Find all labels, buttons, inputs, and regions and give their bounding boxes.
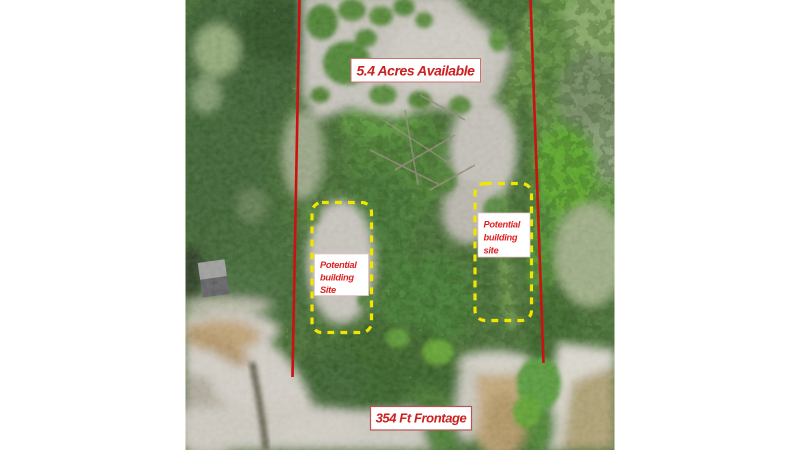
svg-text:building: building	[320, 273, 354, 283]
svg-text:Potential: Potential	[484, 220, 521, 230]
svg-text:5.4 Acres Available: 5.4 Acres Available	[356, 63, 475, 79]
svg-text:Site: Site	[320, 285, 336, 295]
svg-text:Potential: Potential	[320, 260, 357, 270]
svg-text:354 Ft Frontage: 354 Ft Frontage	[376, 411, 467, 426]
svg-text:building: building	[484, 233, 518, 243]
svg-text:site: site	[484, 246, 499, 256]
